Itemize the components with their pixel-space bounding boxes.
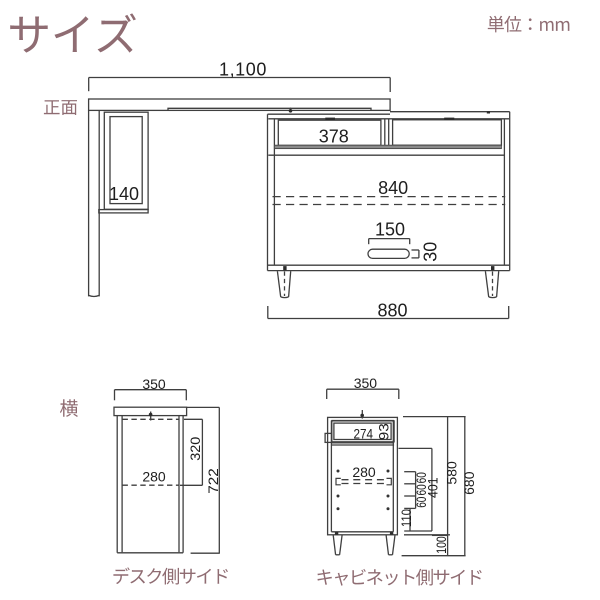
svg-text:274: 274 xyxy=(353,425,373,441)
svg-text:110: 110 xyxy=(398,509,414,527)
svg-text:100: 100 xyxy=(433,536,449,554)
svg-text:30: 30 xyxy=(421,242,441,262)
svg-text:401: 401 xyxy=(425,477,441,498)
svg-text:722: 722 xyxy=(205,468,221,494)
svg-text:880: 880 xyxy=(377,300,407,320)
svg-text:1,100: 1,100 xyxy=(219,60,267,80)
svg-text:280: 280 xyxy=(142,468,166,484)
svg-text:140: 140 xyxy=(109,184,139,204)
svg-text:680: 680 xyxy=(461,471,477,495)
svg-text:378: 378 xyxy=(319,126,349,146)
svg-text:150: 150 xyxy=(375,220,405,240)
svg-text:280: 280 xyxy=(352,464,376,480)
svg-text:840: 840 xyxy=(378,178,408,198)
svg-text:580: 580 xyxy=(443,461,459,485)
svg-text:320: 320 xyxy=(187,437,203,461)
svg-text:93: 93 xyxy=(375,423,391,440)
